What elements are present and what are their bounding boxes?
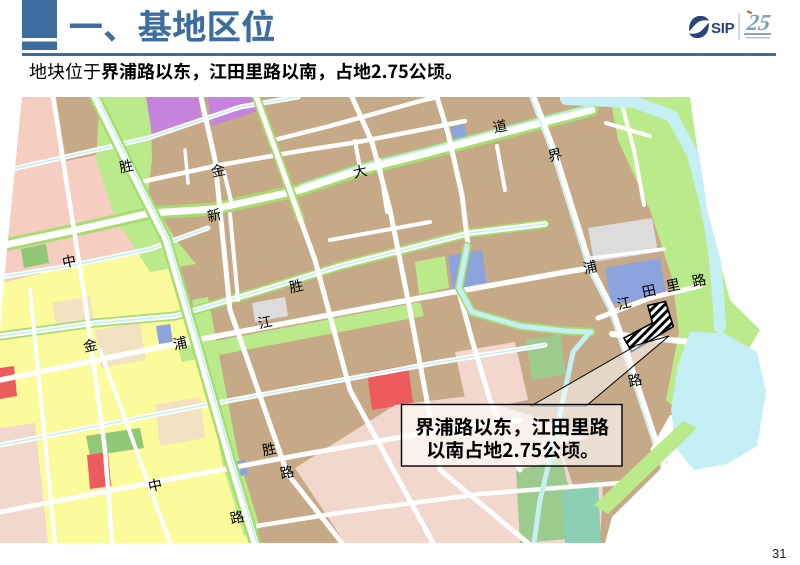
svg-text:31: 31 [772,546,786,561]
svg-text:SIP: SIP [711,20,735,37]
svg-text:25: 25 [743,11,774,36]
